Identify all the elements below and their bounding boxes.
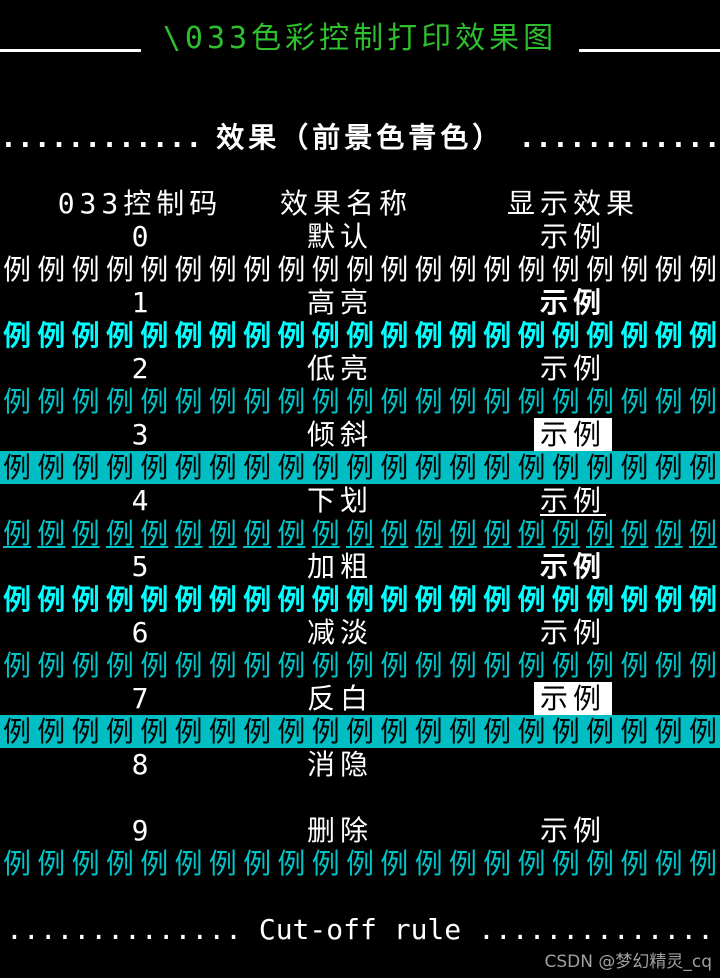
column-header-name: 效果名称 [280, 187, 400, 220]
demo-char: 例 [689, 649, 717, 682]
row-sample-cell: 示例 [400, 814, 720, 847]
table-rows: 0默认示例例例例例例例例例例例例例例例例例例例例例例1高亮示例例例例例例例例例例… [0, 220, 720, 880]
demo-char: 例 [37, 583, 65, 616]
row-effect-name: 下划 [280, 484, 400, 517]
demo-char: 例 [415, 253, 443, 286]
demo-char: 例 [140, 649, 168, 682]
demo-char: 例 [140, 385, 168, 418]
demo-char: 例 [380, 583, 408, 616]
demo-char: 例 [483, 715, 511, 748]
demo-char: 例 [346, 649, 374, 682]
demo-char: 例 [277, 715, 305, 748]
table-row: 0默认示例 [0, 220, 720, 253]
row-code-value: 5 [132, 550, 149, 583]
demo-char: 例 [243, 847, 271, 880]
row-sample: 示例 [540, 616, 606, 649]
demo-char: 例 [449, 847, 477, 880]
demo-char: 例 [620, 583, 648, 616]
demo-char: 例 [483, 583, 511, 616]
row-code-value: 4 [132, 484, 149, 517]
demo-char: 例 [3, 319, 31, 352]
demo-char: 例 [312, 385, 340, 418]
demo-char: 例 [415, 319, 443, 352]
column-header-effect: 显示效果 [400, 187, 720, 220]
demo-char: 例 [346, 583, 374, 616]
section-dots-right: ............ [518, 121, 720, 154]
demo-char: 例 [620, 385, 648, 418]
row-effect-name: 删除 [280, 814, 400, 847]
demo-char: 例 [209, 319, 237, 352]
demo-char: 例 [243, 253, 271, 286]
demo-char: 例 [174, 253, 202, 286]
demo-char: 例 [243, 319, 271, 352]
demo-char: 例 [655, 451, 683, 484]
demo-line: 例例例例例例例例例例例例例例例例例例例例例 [0, 385, 720, 418]
demo-char: 例 [209, 451, 237, 484]
row-code: 5 [0, 550, 280, 583]
demo-char: 例 [209, 583, 237, 616]
demo-char: 例 [415, 715, 443, 748]
demo-char: 例 [586, 517, 614, 550]
demo-char: 例 [174, 715, 202, 748]
demo-char: 例 [37, 715, 65, 748]
demo-char: 例 [346, 517, 374, 550]
column-header-code: 033控制码 [0, 187, 280, 220]
demo-char: 例 [620, 649, 648, 682]
demo-char: 例 [72, 649, 100, 682]
row-effect-name: 倾斜 [280, 418, 400, 451]
demo-char: 例 [3, 649, 31, 682]
demo-line: 例例例例例例例例例例例例例例例例例例例例例 [0, 583, 720, 616]
demo-char: 例 [483, 649, 511, 682]
demo-char: 例 [380, 517, 408, 550]
demo-char: 例 [106, 649, 134, 682]
demo-char: 例 [3, 583, 31, 616]
demo-char: 例 [209, 517, 237, 550]
demo-char: 例 [72, 715, 100, 748]
demo-char: 例 [620, 715, 648, 748]
demo-char: 例 [620, 517, 648, 550]
demo-char: 例 [277, 517, 305, 550]
row-effect-name: 加粗 [280, 550, 400, 583]
demo-char: 例 [655, 649, 683, 682]
demo-char: 例 [552, 715, 580, 748]
demo-char: 例 [620, 319, 648, 352]
row-code-value: 9 [132, 814, 149, 847]
demo-line: 例例例例例例例例例例例例例例例例例例例例例 [0, 715, 720, 748]
demo-char: 例 [380, 319, 408, 352]
row-code: 4 [0, 484, 280, 517]
demo-char: 例 [517, 253, 545, 286]
row-sample: 示例 [540, 550, 606, 583]
row-code: 0 [0, 220, 280, 253]
row-effect-name: 消隐 [280, 748, 400, 781]
blank-line [0, 880, 720, 913]
row-code-value: 7 [132, 682, 149, 715]
demo-char: 例 [655, 517, 683, 550]
demo-char: 例 [620, 253, 648, 286]
row-sample-cell: 示例 [400, 484, 720, 517]
demo-char: 例 [140, 253, 168, 286]
demo-char: 例 [243, 583, 271, 616]
demo-char: 例 [37, 517, 65, 550]
column-header-row: 033控制码 效果名称 显示效果 [0, 187, 720, 220]
demo-char: 例 [106, 715, 134, 748]
table-row: 9删除示例 [0, 814, 720, 847]
row-effect-name: 减淡 [280, 616, 400, 649]
demo-char: 例 [689, 451, 717, 484]
demo-line: 例例例例例例例例例例例例例例例例例例例例例 [0, 253, 720, 286]
demo-char: 例 [483, 847, 511, 880]
demo-char: 例 [37, 847, 65, 880]
title-line: \033色彩控制打印效果图 [0, 22, 720, 55]
demo-line: 例例例例例例例例例例例例例例例例例例例例例 [0, 847, 720, 880]
row-sample-cell: 示例 [400, 418, 720, 451]
demo-char: 例 [209, 715, 237, 748]
section-dots-left: ............ [0, 121, 202, 154]
demo-char: 例 [586, 847, 614, 880]
demo-char: 例 [243, 517, 271, 550]
table-row: 4下划示例 [0, 484, 720, 517]
demo-char: 例 [380, 847, 408, 880]
demo-char: 例 [483, 385, 511, 418]
demo-char: 例 [415, 583, 443, 616]
table-row: 2低亮示例 [0, 352, 720, 385]
row-sample: 示例 [540, 220, 606, 253]
row-code: 6 [0, 616, 280, 649]
demo-char: 例 [689, 847, 717, 880]
demo-char: 例 [415, 385, 443, 418]
demo-char: 例 [449, 319, 477, 352]
demo-char: 例 [277, 583, 305, 616]
demo-char: 例 [209, 385, 237, 418]
demo-char: 例 [552, 319, 580, 352]
demo-char: 例 [346, 847, 374, 880]
row-code-value: 1 [132, 286, 149, 319]
demo-char: 例 [140, 451, 168, 484]
demo-char: 例 [3, 253, 31, 286]
demo-char: 例 [449, 583, 477, 616]
demo-char: 例 [586, 583, 614, 616]
demo-line: 例例例例例例例例例例例例例例例例例例例例例 [0, 649, 720, 682]
demo-char: 例 [380, 253, 408, 286]
demo-char: 例 [312, 715, 340, 748]
demo-char: 例 [552, 451, 580, 484]
demo-char: 例 [483, 319, 511, 352]
section-title: 效果（前景色青色） [216, 121, 504, 154]
page-title: \033色彩控制打印效果图 [163, 22, 557, 55]
demo-char: 例 [174, 385, 202, 418]
demo-char: 例 [586, 451, 614, 484]
demo-char: 例 [174, 517, 202, 550]
demo-char: 例 [415, 847, 443, 880]
row-code: 3 [0, 418, 280, 451]
demo-char: 例 [243, 385, 271, 418]
row-effect-name: 默认 [280, 220, 400, 253]
demo-char: 例 [586, 385, 614, 418]
row-code-value: 6 [132, 616, 149, 649]
demo-char: 例 [449, 253, 477, 286]
demo-char: 例 [517, 319, 545, 352]
demo-char: 例 [689, 253, 717, 286]
demo-char: 例 [380, 715, 408, 748]
demo-char: 例 [689, 517, 717, 550]
demo-char: 例 [449, 517, 477, 550]
row-code: 2 [0, 352, 280, 385]
demo-char: 例 [655, 319, 683, 352]
row-sample: 示例 [534, 682, 612, 715]
demo-char: 例 [209, 253, 237, 286]
demo-char: 例 [517, 649, 545, 682]
row-effect-name: 高亮 [280, 286, 400, 319]
row-sample: 示例 [540, 814, 606, 847]
demo-char: 例 [277, 385, 305, 418]
demo-line: 例例例例例例例例例例例例例例例例例例例例例 [0, 319, 720, 352]
demo-char: 例 [140, 517, 168, 550]
demo-char: 例 [620, 847, 648, 880]
demo-char: 例 [483, 253, 511, 286]
demo-char: 例 [380, 451, 408, 484]
row-code-value: 8 [132, 748, 149, 781]
demo-char: 例 [552, 385, 580, 418]
demo-char: 例 [655, 715, 683, 748]
demo-char: 例 [312, 847, 340, 880]
blank-line [0, 154, 720, 187]
demo-char: 例 [243, 451, 271, 484]
demo-char: 例 [140, 715, 168, 748]
demo-char: 例 [552, 583, 580, 616]
cutoff-rule: .............. Cut-off rule ............… [0, 913, 720, 946]
demo-char: 例 [72, 847, 100, 880]
demo-char: 例 [106, 583, 134, 616]
table-row: 5加粗示例 [0, 550, 720, 583]
row-code-value: 3 [132, 418, 149, 451]
demo-char: 例 [346, 253, 374, 286]
demo-char: 例 [346, 319, 374, 352]
demo-char: 例 [37, 385, 65, 418]
demo-char: 例 [689, 715, 717, 748]
row-code: 7 [0, 682, 280, 715]
demo-char: 例 [517, 517, 545, 550]
row-sample-cell: 示例 [400, 352, 720, 385]
watermark: CSDN @梦幻精灵_cq [544, 952, 712, 972]
demo-char: 例 [3, 715, 31, 748]
demo-char: 例 [415, 451, 443, 484]
demo-char: 例 [243, 715, 271, 748]
title-rule-left [0, 49, 141, 52]
row-sample-cell: 示例 [400, 616, 720, 649]
demo-char: 例 [277, 847, 305, 880]
demo-char: 例 [552, 253, 580, 286]
demo-char: 例 [106, 451, 134, 484]
demo-char: 例 [517, 715, 545, 748]
demo-char: 例 [277, 253, 305, 286]
row-sample: 示例 [534, 418, 612, 451]
demo-char: 例 [655, 385, 683, 418]
demo-char: 例 [586, 319, 614, 352]
row-sample-cell: 示例 [400, 682, 720, 715]
demo-char: 例 [415, 649, 443, 682]
demo-char: 例 [586, 715, 614, 748]
demo-char: 例 [277, 319, 305, 352]
demo-char: 例 [380, 649, 408, 682]
demo-char: 例 [243, 649, 271, 682]
row-sample-cell: 示例 [400, 550, 720, 583]
demo-char: 例 [346, 715, 374, 748]
row-code-value: 0 [132, 220, 149, 253]
demo-char: 例 [3, 385, 31, 418]
demo-char: 例 [586, 649, 614, 682]
demo-char: 例 [174, 649, 202, 682]
demo-char: 例 [415, 517, 443, 550]
demo-char: 例 [72, 583, 100, 616]
demo-char: 例 [517, 451, 545, 484]
demo-char: 例 [106, 253, 134, 286]
demo-char: 例 [689, 319, 717, 352]
demo-char: 例 [72, 319, 100, 352]
demo-char: 例 [312, 319, 340, 352]
demo-char: 例 [3, 451, 31, 484]
demo-char: 例 [346, 451, 374, 484]
row-sample-cell [400, 748, 720, 781]
demo-char: 例 [140, 319, 168, 352]
demo-char: 例 [140, 847, 168, 880]
demo-char: 例 [72, 385, 100, 418]
demo-char: 例 [689, 385, 717, 418]
table-row: 3倾斜示例 [0, 418, 720, 451]
demo-char: 例 [106, 385, 134, 418]
demo-line: 例例例例例例例例例例例例例例例例例例例例例 [0, 517, 720, 550]
table-row: 8消隐 [0, 748, 720, 781]
demo-char: 例 [517, 847, 545, 880]
demo-char: 例 [449, 715, 477, 748]
demo-char: 例 [72, 517, 100, 550]
row-sample: 示例 [540, 286, 606, 319]
demo-char: 例 [483, 451, 511, 484]
row-effect-name: 反白 [280, 682, 400, 715]
table-row: 7反白示例 [0, 682, 720, 715]
demo-char: 例 [449, 385, 477, 418]
demo-char: 例 [449, 451, 477, 484]
demo-char: 例 [312, 451, 340, 484]
demo-char: 例 [517, 385, 545, 418]
row-sample: 示例 [540, 352, 606, 385]
demo-char: 例 [106, 847, 134, 880]
blank-line [0, 88, 720, 121]
demo-char: 例 [586, 253, 614, 286]
demo-char: 例 [140, 583, 168, 616]
row-sample-cell: 示例 [400, 286, 720, 319]
demo-char: 例 [346, 385, 374, 418]
demo-char: 例 [72, 253, 100, 286]
blank-line [0, 55, 720, 88]
demo-char: 例 [72, 451, 100, 484]
demo-char: 例 [552, 649, 580, 682]
demo-char: 例 [37, 253, 65, 286]
demo-char: 例 [380, 385, 408, 418]
demo-char: 例 [312, 649, 340, 682]
terminal-screen: \033色彩控制打印效果图 ............ 效果（前景色青色） ...… [0, 0, 720, 978]
table-row: 1高亮示例 [0, 286, 720, 319]
demo-char: 例 [517, 583, 545, 616]
demo-char: 例 [106, 517, 134, 550]
demo-char: 例 [552, 847, 580, 880]
row-code: 9 [0, 814, 280, 847]
demo-char: 例 [174, 583, 202, 616]
demo-char: 例 [689, 583, 717, 616]
demo-char: 例 [312, 517, 340, 550]
demo-char: 例 [209, 847, 237, 880]
demo-char: 例 [37, 319, 65, 352]
demo-char: 例 [174, 451, 202, 484]
row-effect-name: 低亮 [280, 352, 400, 385]
demo-char: 例 [483, 517, 511, 550]
demo-char: 例 [174, 847, 202, 880]
section-header: ............ 效果（前景色青色） ............ [0, 121, 720, 154]
row-code: 1 [0, 286, 280, 319]
title-rule-right [579, 49, 720, 52]
demo-char: 例 [655, 847, 683, 880]
demo-char: 例 [3, 517, 31, 550]
demo-char: 例 [312, 583, 340, 616]
row-sample: 示例 [540, 484, 606, 517]
row-code: 8 [0, 748, 280, 781]
demo-line: 例例例例例例例例例例例例例例例例例例例例例 [0, 451, 720, 484]
demo-char: 例 [312, 253, 340, 286]
row-code-value: 2 [132, 352, 149, 385]
demo-char: 例 [552, 517, 580, 550]
demo-char: 例 [620, 451, 648, 484]
demo-char: 例 [37, 649, 65, 682]
demo-char: 例 [655, 583, 683, 616]
demo-char: 例 [209, 649, 237, 682]
demo-char: 例 [449, 649, 477, 682]
demo-char: 例 [277, 649, 305, 682]
demo-char: 例 [655, 253, 683, 286]
demo-char: 例 [106, 319, 134, 352]
demo-char: 例 [3, 847, 31, 880]
row-sample-cell: 示例 [400, 220, 720, 253]
table-row: 6减淡示例 [0, 616, 720, 649]
demo-char: 例 [277, 451, 305, 484]
demo-char: 例 [37, 451, 65, 484]
demo-char: 例 [174, 319, 202, 352]
